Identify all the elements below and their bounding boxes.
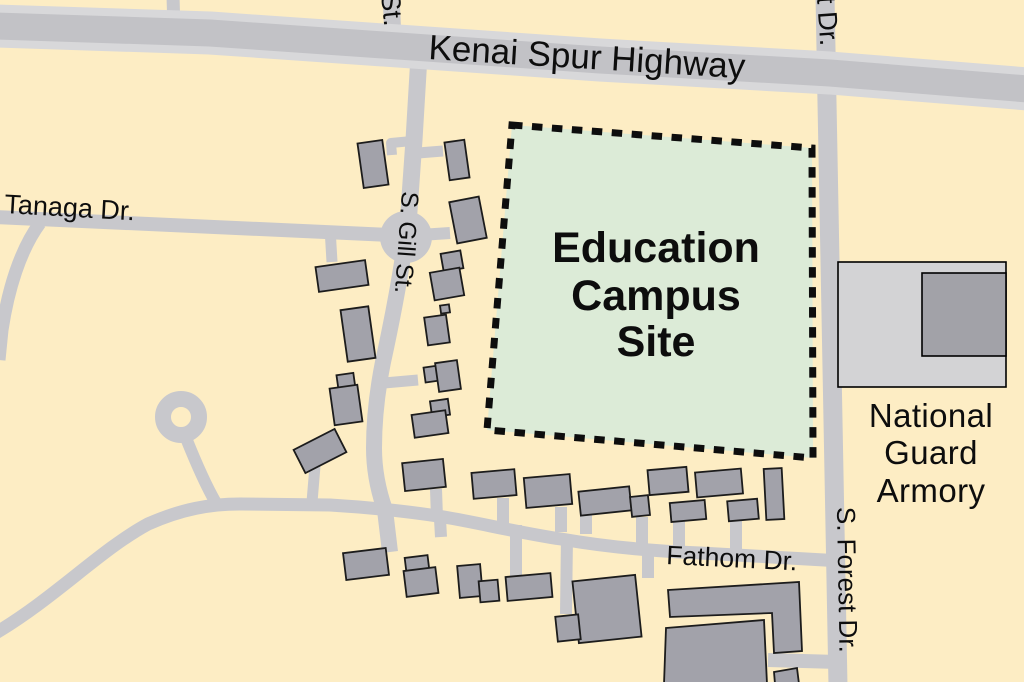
svg-text:S. Forest Dr.: S. Forest Dr. [831, 507, 864, 653]
svg-text:National: National [869, 397, 993, 434]
svg-text:t Dr.: t Dr. [811, 0, 844, 47]
svg-text:Guard: Guard [884, 434, 978, 471]
svg-text:Site: Site [617, 318, 696, 366]
svg-text:Armory: Armory [877, 472, 986, 509]
svg-text:Campus: Campus [571, 272, 741, 320]
svg-text:Education: Education [552, 224, 760, 272]
svg-text:St.: St. [375, 0, 408, 27]
svg-text:Fathom Dr.: Fathom Dr. [666, 540, 798, 576]
